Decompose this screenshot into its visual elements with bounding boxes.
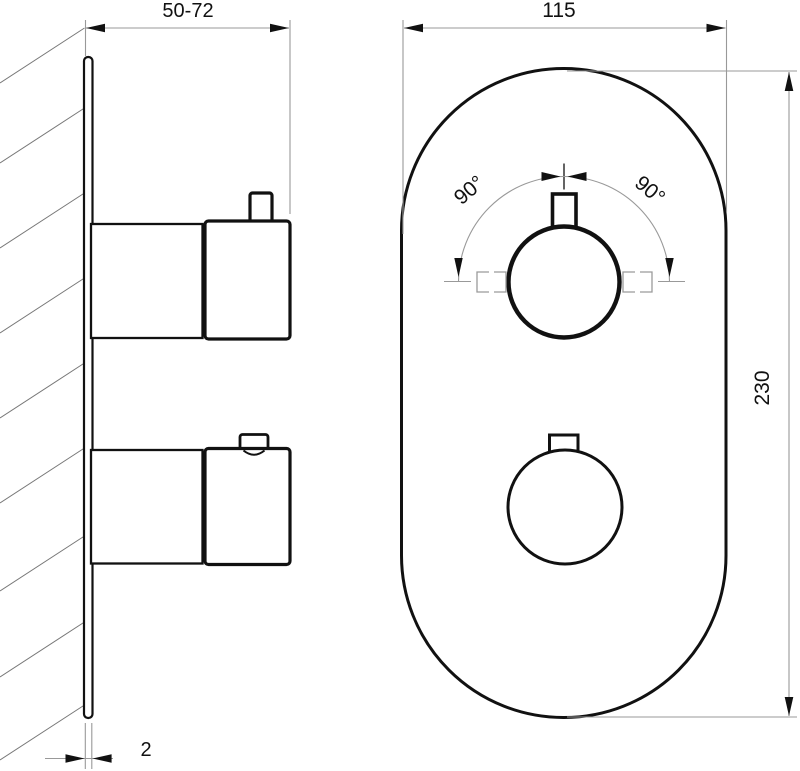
upper-handle-base-side: [91, 224, 203, 338]
hatch-line: [0, 536, 85, 591]
hatch-line: [0, 448, 85, 503]
hatch-line: [0, 108, 85, 163]
hatch-line: [0, 193, 85, 248]
technical-drawing-page: 50-72 2: [0, 0, 800, 771]
cover-plate-side-profile: [84, 57, 93, 718]
dimension-depth-range: 50-72: [86, 0, 291, 214]
depth-range-label: 50-72: [162, 0, 213, 22]
hatch-line: [0, 363, 85, 418]
dimension-plate-thickness: 2: [45, 723, 152, 769]
mixer-dimension-drawing: 50-72 2: [0, 0, 800, 771]
arrowhead-right: [66, 754, 85, 763]
lower-handle-grip-side: [205, 449, 290, 565]
side-view: 50-72 2: [0, 0, 290, 769]
upper-handle-grip-side: [205, 221, 290, 339]
arrowhead-left: [404, 24, 423, 33]
hatch-line: [0, 705, 85, 760]
front-view: 90° 90° 115 230: [402, 0, 798, 718]
lower-handle-base-side: [91, 450, 203, 564]
hatch-line: [0, 28, 85, 83]
upper-handle-side: [91, 193, 290, 339]
arrowhead-left: [86, 24, 105, 33]
arrowhead-right: [270, 24, 289, 33]
upper-handle-stem-front: [553, 194, 577, 228]
arrowhead-right: [707, 24, 726, 33]
lower-handle-knob-front: [508, 450, 622, 564]
hatch-line: [0, 622, 85, 677]
hatch-line: [0, 278, 85, 333]
upper-handle-knob-front: [509, 227, 620, 338]
arrowhead-down: [785, 697, 794, 716]
width-label: 115: [542, 0, 575, 22]
arrowhead-up: [785, 72, 794, 91]
arrowhead-left: [93, 754, 112, 763]
height-label: 230: [751, 370, 774, 405]
lower-handle-side: [91, 435, 290, 565]
wall-hatching: [0, 28, 85, 760]
thickness-label: 2: [140, 739, 151, 761]
